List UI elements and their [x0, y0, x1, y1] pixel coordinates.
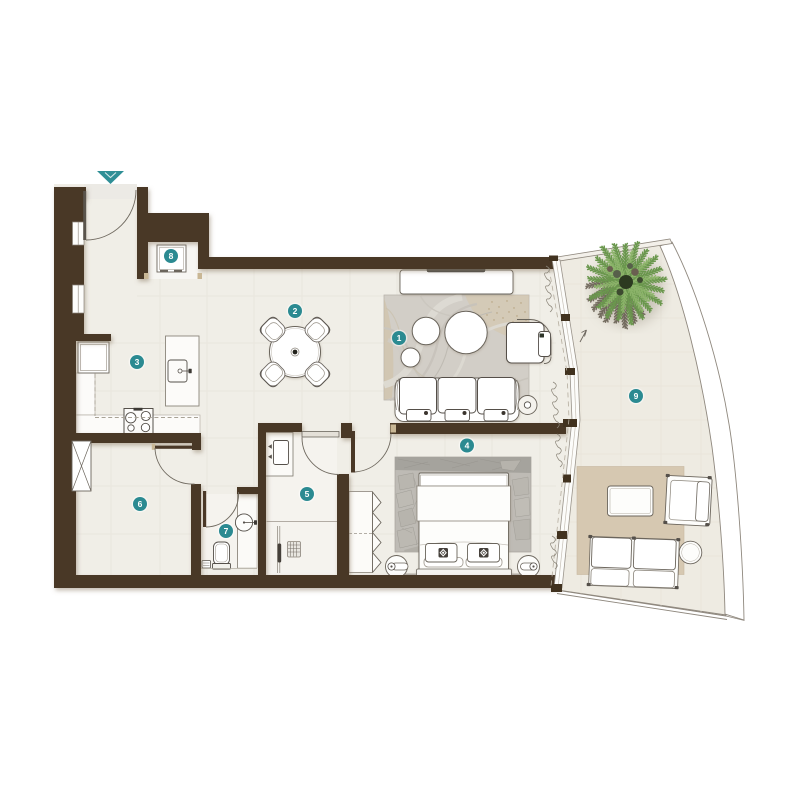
svg-text:3: 3 — [135, 357, 140, 367]
svg-text:5: 5 — [305, 489, 310, 499]
svg-text:8: 8 — [169, 251, 174, 261]
svg-text:9: 9 — [634, 391, 639, 401]
svg-text:1: 1 — [397, 333, 402, 343]
svg-text:2: 2 — [293, 306, 298, 316]
svg-text:6: 6 — [138, 499, 143, 509]
svg-text:7: 7 — [224, 526, 229, 536]
svg-text:4: 4 — [465, 441, 470, 451]
